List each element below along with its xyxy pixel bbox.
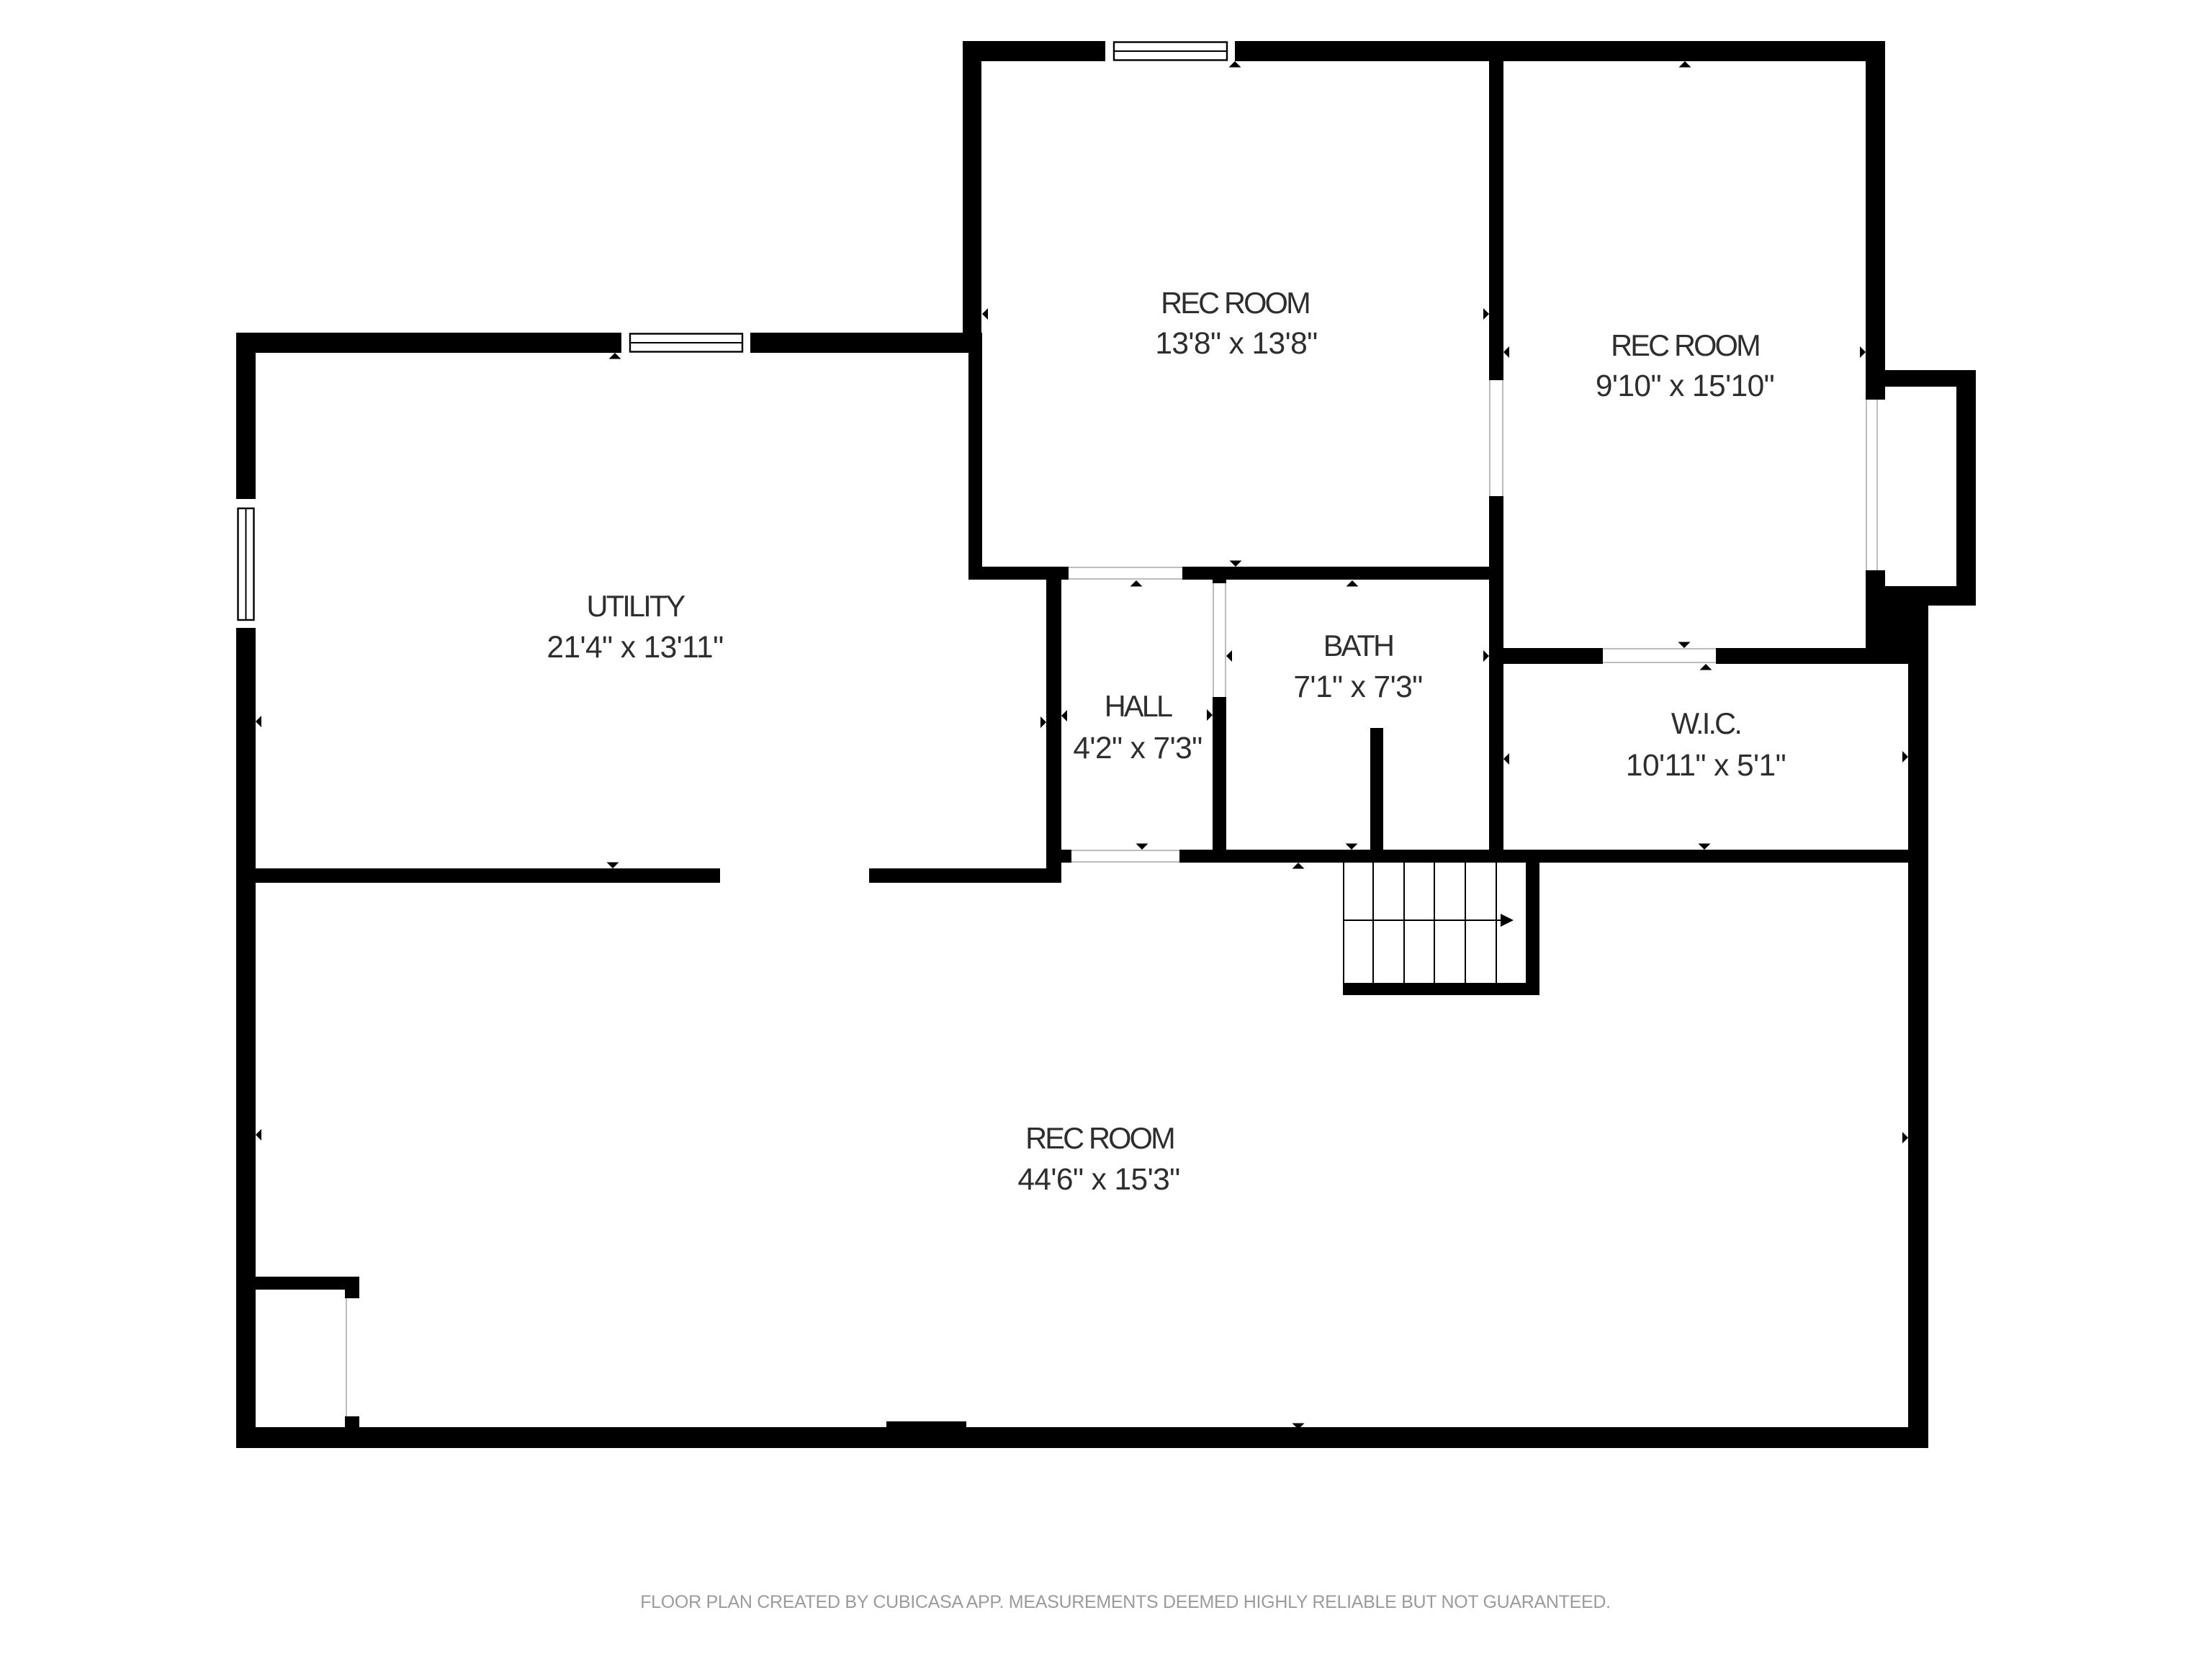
svg-text:REC ROOM: REC ROOM [1025,1121,1174,1155]
svg-text:REC ROOM: REC ROOM [1161,286,1309,320]
svg-text:10'11" x 5'1": 10'11" x 5'1" [1626,749,1786,783]
svg-text:FLOOR PLAN CREATED BY CUBICASA: FLOOR PLAN CREATED BY CUBICASA APP. MEAS… [640,1592,1611,1612]
svg-text:HALL: HALL [1105,689,1172,723]
svg-text:44'6" x 15'3": 44'6" x 15'3" [1017,1163,1179,1197]
svg-text:4'2" x 7'3": 4'2" x 7'3" [1073,732,1202,765]
svg-text:W.I.C.: W.I.C. [1671,706,1740,740]
svg-text:REC ROOM: REC ROOM [1611,328,1759,362]
svg-text:13'8" x 13'8": 13'8" x 13'8" [1155,327,1317,361]
svg-text:9'10" x 15'10": 9'10" x 15'10" [1596,369,1774,403]
svg-text:7'1" x 7'3": 7'1" x 7'3" [1293,670,1422,704]
svg-text:21'4" x 13'11": 21'4" x 13'11" [547,631,723,665]
svg-text:UTILITY: UTILITY [587,589,685,623]
svg-text:BATH: BATH [1323,629,1393,662]
